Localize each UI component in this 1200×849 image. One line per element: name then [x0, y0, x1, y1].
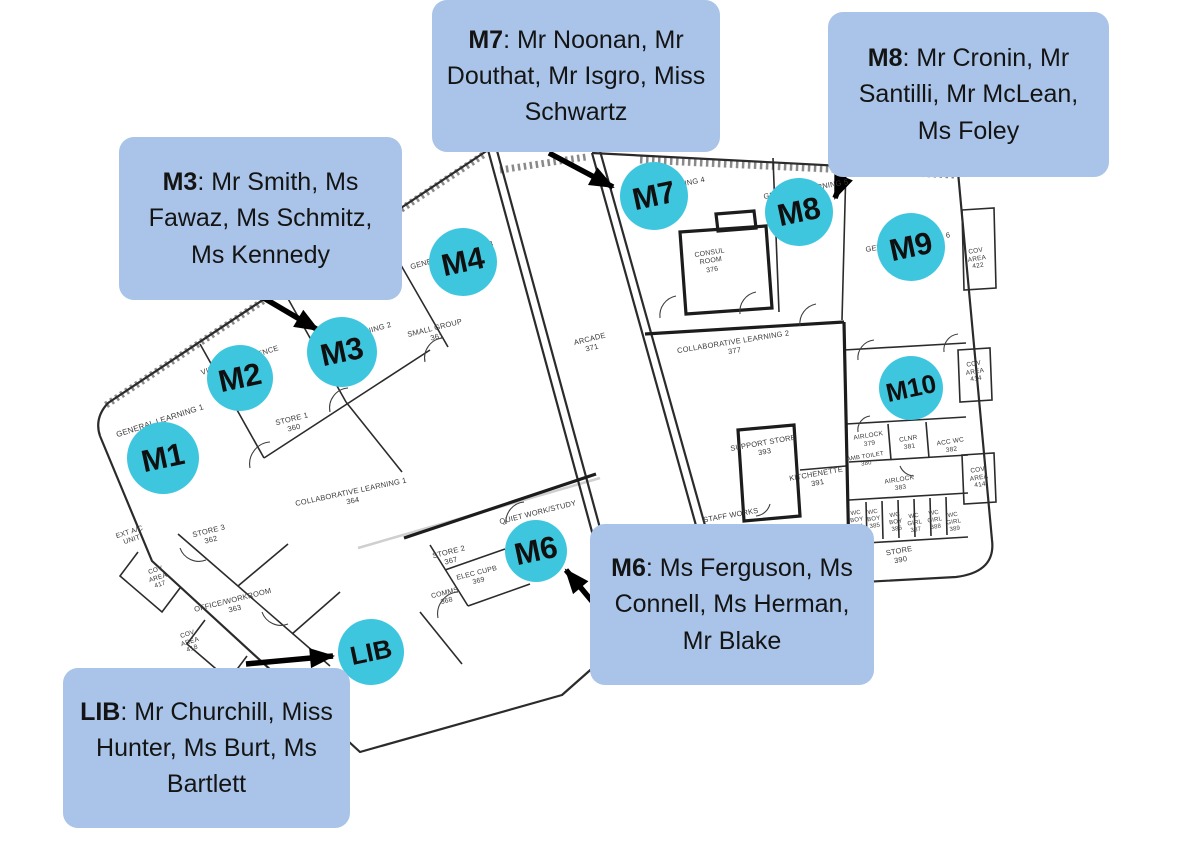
callout-m7-room: M7 — [468, 26, 503, 54]
callout-m7: M7: Mr Noonan, Mr Douthat, Mr Isgro, Mis… — [432, 0, 720, 152]
callout-m8: M8: Mr Cronin, Mr Santilli, Mr McLean, M… — [828, 12, 1109, 177]
callout-lib-text: LIB: Mr Churchill, Miss Hunter, Ms Burt,… — [75, 694, 338, 803]
annotated-floorplan: GENERAL LEARNING 1VIDEO CONFERENCEGENERA… — [0, 0, 1200, 849]
callout-m3-room: M3 — [163, 168, 198, 196]
arrow-to-m7 — [549, 153, 613, 187]
callout-m3-text: M3: Mr Smith, Ms Fawaz, Ms Schmitz, Ms K… — [131, 164, 390, 273]
callout-m3: M3: Mr Smith, Ms Fawaz, Ms Schmitz, Ms K… — [119, 137, 402, 300]
callout-m6: M6: Ms Ferguson, Ms Connell, Ms Herman, … — [590, 524, 874, 685]
callout-m6-text: M6: Ms Ferguson, Ms Connell, Ms Herman, … — [602, 550, 862, 659]
callout-m8-room: M8 — [868, 44, 903, 72]
callout-m8-text: M8: Mr Cronin, Mr Santilli, Mr McLean, M… — [840, 40, 1097, 149]
bold-walls — [404, 211, 849, 558]
callout-lib-room: LIB — [80, 698, 120, 726]
callout-lib-names: : Mr Churchill, Miss Hunter, Ms Burt, Ms… — [96, 698, 333, 799]
callout-lib: LIB: Mr Churchill, Miss Hunter, Ms Burt,… — [63, 668, 350, 828]
callout-m6-room: M6 — [611, 554, 646, 582]
callout-m7-text: M7: Mr Noonan, Mr Douthat, Mr Isgro, Mis… — [444, 22, 708, 131]
callout-m6-names: : Ms Ferguson, Ms Connell, Ms Herman, Mr… — [615, 554, 853, 655]
